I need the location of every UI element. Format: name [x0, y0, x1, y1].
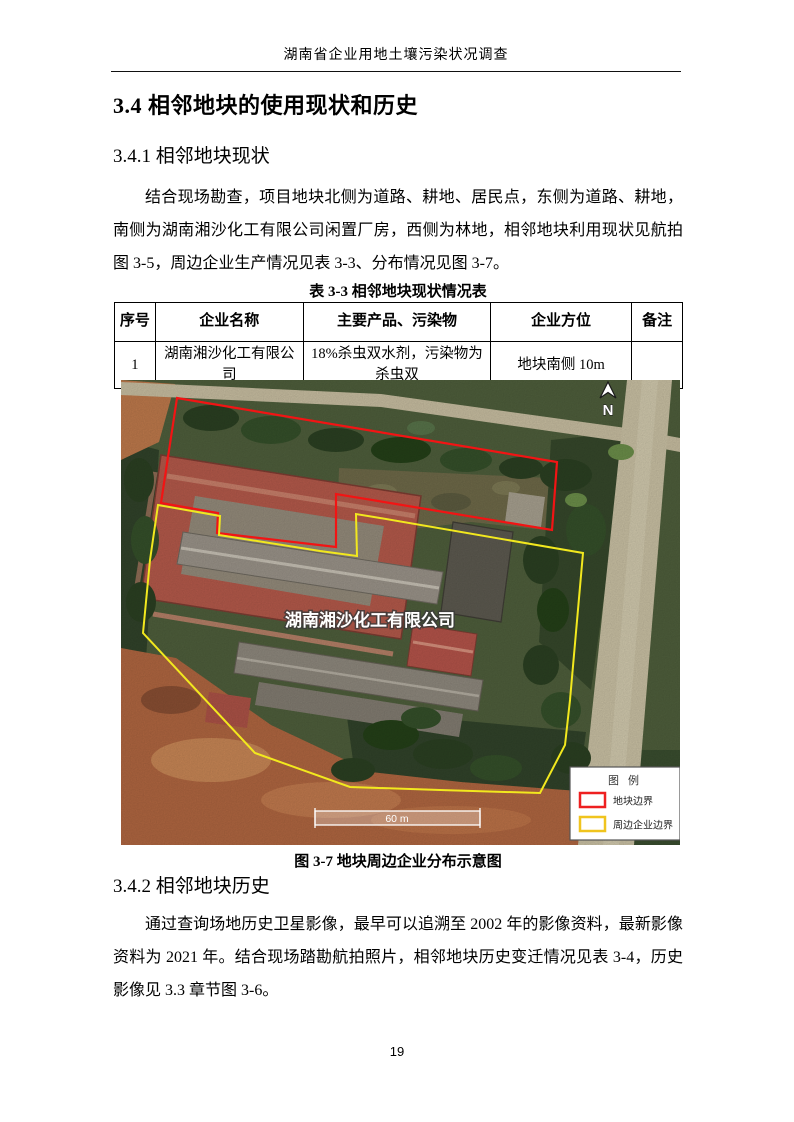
- th-company: 企业名称: [155, 303, 303, 342]
- north-label: N: [603, 402, 614, 419]
- th-products: 主要产品、污染物: [303, 303, 490, 342]
- th-index: 序号: [115, 303, 156, 342]
- th-remark: 备注: [632, 303, 683, 342]
- scale-label: 60 m: [385, 813, 409, 825]
- satellite-map: 湖南湘沙化工有限公司 N 60 m 图 例 地块边界 周边企业边界: [121, 380, 680, 845]
- running-header: 湖南省企业用地土壤污染状况调查: [111, 44, 681, 72]
- legend-swatch-surrounding: [580, 817, 605, 831]
- paragraph-history: 通过查询场地历史卫星影像，最早可以追溯至 2002 年的影像资料，最新影像资料为…: [113, 908, 683, 1007]
- scale-bar: 60 m: [315, 808, 480, 828]
- satellite-figure: 湖南湘沙化工有限公司 N 60 m 图 例 地块边界 周边企业边界: [121, 380, 680, 845]
- legend-label-site: 地块边界: [613, 795, 653, 808]
- document-page: 湖南省企业用地土壤污染状况调查 3.4 相邻地块的使用现状和历史 3.4.1 相…: [0, 0, 794, 1122]
- legend-swatch-site: [580, 793, 605, 807]
- map-legend: 图 例 地块边界 周边企业边界: [570, 767, 680, 840]
- legend-label-surrounding: 周边企业边界: [613, 819, 673, 832]
- paragraph-current-status: 结合现场勘查，项目地块北侧为道路、耕地、居民点，东侧为道路、耕地，南侧为湖南湘沙…: [113, 181, 683, 280]
- page-number: 19: [0, 1044, 794, 1059]
- adjacent-parcel-table: 序号 企业名称 主要产品、污染物 企业方位 备注 1 湖南湘沙化工有限公司 18…: [114, 302, 683, 389]
- figure-caption: 图 3-7 地块周边企业分布示意图: [113, 850, 683, 871]
- table-title: 表 3-3 相邻地块现状情况表: [113, 280, 683, 301]
- section-heading: 3.4 相邻地块的使用现状和历史: [113, 88, 418, 120]
- th-direction: 企业方位: [490, 303, 631, 342]
- table-header-row: 序号 企业名称 主要产品、污染物 企业方位 备注: [115, 303, 683, 342]
- company-label: 湖南湘沙化工有限公司: [285, 610, 455, 630]
- legend-title: 图 例: [608, 773, 642, 787]
- subsection-heading-current: 3.4.1 相邻地块现状: [113, 141, 270, 168]
- subsection-heading-history: 3.4.2 相邻地块历史: [113, 871, 270, 898]
